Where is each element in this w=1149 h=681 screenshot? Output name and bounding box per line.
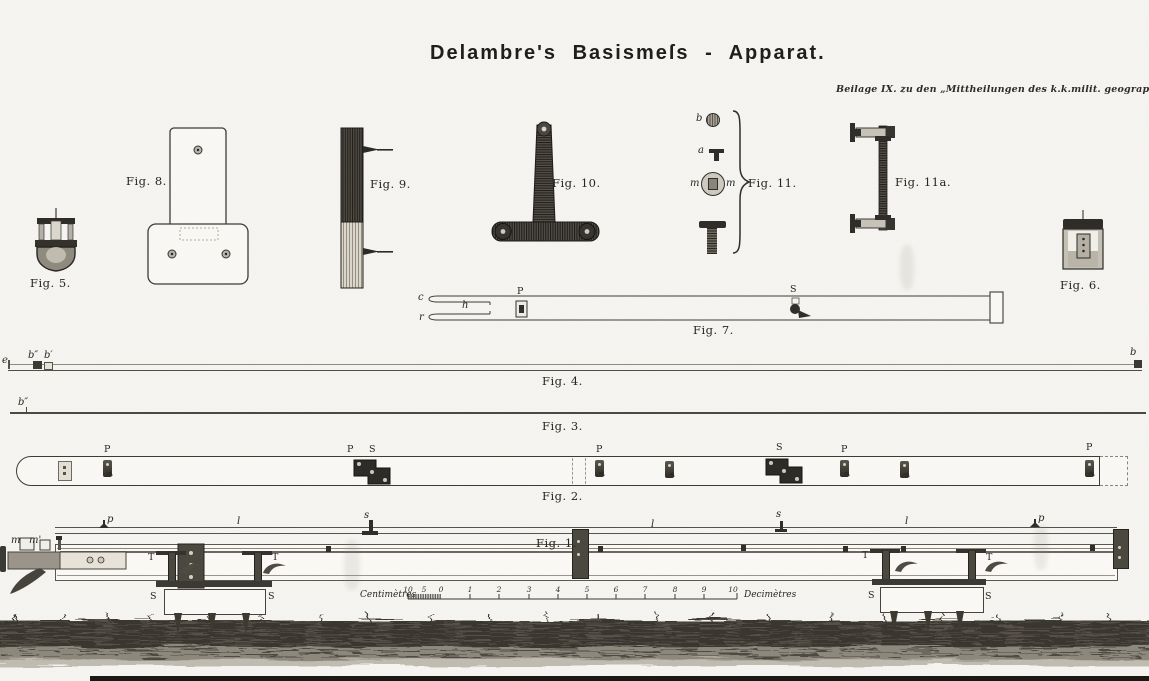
fig1-rail-block: [741, 545, 746, 551]
fig1-middle-bracket-hole: [577, 540, 580, 543]
fig2-clamp-p1: [103, 460, 112, 477]
fig4-letter-e: e: [2, 356, 8, 366]
fig1-letter-s-box: S: [868, 591, 875, 601]
fig1-right-plate-hole: [1118, 556, 1121, 559]
fig2-marker-4: P: [596, 445, 602, 455]
page-title: Delambre's Basismeſs - Apparat.: [430, 42, 826, 65]
scale-tick: 3: [527, 585, 532, 594]
scale-tick: 5: [422, 585, 427, 594]
fig1-s-fitting-left-base: [362, 531, 378, 535]
fig1-middle-bracket-hole: [577, 553, 580, 556]
fig11-bolt-head: [699, 221, 726, 228]
fig10-label: Fig. 10.: [552, 176, 601, 190]
scale-tick: 9: [702, 585, 707, 594]
fig2-sleeve-fitting-2: [764, 457, 804, 485]
fig1-letter-s-left: s: [364, 511, 369, 521]
scale-tick: 8: [673, 585, 678, 594]
engraving-sheet: Delambre's Basismeſs - Apparat. Beilage …: [0, 0, 1149, 681]
fig2-marker-2: P: [347, 445, 353, 455]
fig1-ground-spike: [208, 613, 216, 635]
fig2-clamp-p3: [840, 460, 849, 477]
fig1-letter-s-box: S: [268, 592, 275, 602]
scan-edge-bar: [90, 676, 1149, 681]
fig2-fitting-plain: [58, 461, 72, 481]
fig4-letter-b2: b″: [28, 351, 38, 361]
fig3-rod: [10, 412, 1146, 414]
fig2-marker-1: P: [104, 445, 110, 455]
scale-bar: 10 5 0 1 2 3 4 5 6 7 8 9 10: [402, 584, 747, 604]
fig1-letter-l-left: l: [237, 517, 240, 527]
ground-texture: [0, 608, 1149, 680]
scale-tick: 7: [643, 585, 648, 594]
fig1-s-fitting-right-base: [775, 529, 787, 532]
fig1-ground-spike: [890, 611, 898, 633]
fig1-letter-s-box: S: [150, 592, 157, 602]
fig1-trestle-post: [882, 551, 890, 581]
fig6-box-drawing: [1060, 210, 1106, 274]
fig8-label: Fig. 8.: [126, 174, 167, 188]
fig1-lever-arrow: [894, 558, 920, 574]
scale-tick: 5: [585, 585, 590, 594]
fig9-label: Fig. 9.: [370, 177, 411, 191]
fig9-bar-drawing: [340, 126, 425, 294]
fig7-letter-r: r: [419, 313, 424, 323]
fig7-letter-c: c: [418, 293, 424, 303]
fig1-ground-spike: [924, 611, 932, 633]
fig7-letter-a: a: [520, 303, 524, 311]
fig2-marker-5: S: [776, 443, 783, 453]
fig1-letter-l-mid: l: [651, 520, 654, 530]
fig5-label: Fig. 5.: [30, 276, 71, 290]
fig4-end-tick: [8, 360, 10, 369]
fig2-marker-7: P: [1086, 443, 1092, 453]
fig11-bolt-shaft: [707, 228, 717, 254]
fig1-letter-p-right: p: [1038, 514, 1044, 524]
fig1-letter-l-right: l: [905, 517, 908, 527]
fig1-ground-spike: [956, 611, 964, 633]
fig7-label: Fig. 7.: [693, 323, 734, 337]
fig11-part-b-letter: b: [696, 114, 702, 124]
scan-smudge: [1034, 525, 1048, 570]
fig4-label: Fig. 4.: [542, 374, 583, 388]
fig1-lever-arrow: [180, 560, 206, 576]
fig2-clamp-p2: [595, 460, 604, 477]
scale-tick: 10: [403, 585, 413, 594]
scan-smudge: [344, 540, 360, 590]
fig1-letter-s-right: s: [776, 510, 781, 520]
fig4-wire: [8, 364, 1142, 371]
fig7-letter-p: P: [517, 287, 523, 297]
fig4-left-fitting: [33, 361, 42, 369]
fig1-s-fitting-left-stem: [369, 520, 373, 531]
fig8-plate-drawing: [146, 124, 252, 290]
fig2-clamp-plain1: [665, 461, 674, 478]
fig1-rail-block: [843, 546, 848, 552]
fig1-trestle-box: [880, 587, 984, 613]
fig1-letter-t: T: [862, 551, 868, 561]
fig1-trestle-post: [968, 551, 976, 581]
fig2-label: Fig. 2.: [542, 489, 583, 503]
fig1-letter-p-left: p: [107, 515, 113, 525]
fig1-letter-m-prime: m': [29, 536, 41, 546]
fig2-joint: [572, 458, 586, 484]
fig1-trestle-crossbar: [156, 581, 272, 587]
fig4-letter-b: b: [1130, 348, 1136, 358]
scale-dm-unit: Decimètres: [744, 591, 796, 600]
fig11-part-a-letter: a: [698, 146, 704, 156]
fig1-trestle-box: [164, 589, 266, 615]
fig1-letter-t: T: [272, 553, 278, 563]
fig1-trestle-post: [254, 553, 262, 583]
fig1-right-plate-hole: [1118, 546, 1121, 549]
scale-tick: 10: [728, 585, 738, 594]
fig5-plummet-drawing: [30, 208, 82, 276]
fig1-rail-block: [901, 546, 906, 552]
fig1-ground-spike: [242, 613, 250, 635]
fig11-disc-slot: [708, 178, 718, 190]
fig11-part-m-left-letter: m: [690, 179, 699, 189]
fig2-clamp-plain2: [900, 461, 909, 478]
fig1-letter-t: T: [986, 553, 992, 563]
fig2-marker-3: S: [369, 445, 376, 455]
fig1-ground-spike: [174, 613, 182, 635]
fig2-bar-dashed-end: [1100, 456, 1128, 486]
fig2-clamp-p4: [1085, 460, 1094, 477]
fig2-bar: [16, 456, 1100, 486]
attribution-line: Beilage IX. zu den „Mittheilungen des k.…: [836, 84, 1149, 95]
fig1-letter-s-box: S: [985, 592, 992, 602]
fig7-letter-h: h: [462, 301, 468, 311]
fig1-trestle-crossbar: [872, 579, 986, 585]
fig6-label: Fig. 6.: [1060, 278, 1101, 292]
fig3-letter-b: b″: [18, 398, 28, 408]
fig2-marker-6: P: [841, 445, 847, 455]
fig11a-label: Fig. 11a.: [895, 175, 951, 189]
fig1-rail-block: [326, 546, 331, 552]
scale-tick: 6: [614, 585, 619, 594]
fig1-right-end-plate: [1113, 529, 1129, 569]
fig1-s-fitting-right-stem: [780, 521, 783, 529]
fig2-sleeve-fitting-1: [352, 458, 392, 486]
scale-tick: 4: [555, 585, 561, 594]
fig11-knob-b: [706, 113, 720, 127]
fig4-left-fitting2: [44, 362, 53, 370]
fig1-letter-t: T: [148, 553, 154, 563]
fig1-label: Fig. 1.: [536, 536, 577, 550]
scan-smudge: [900, 245, 914, 290]
scale-tick: 1: [468, 585, 473, 594]
fig7-letter-s: S: [790, 285, 797, 295]
fig4-right-fitting: [1134, 360, 1142, 368]
scale-tick: 0: [439, 585, 444, 594]
fig1-trestle-post: [168, 553, 176, 583]
fig4-letter-b1: b′: [44, 351, 53, 361]
fig1-rail-block: [1090, 545, 1095, 551]
fig11-label: Fig. 11.: [748, 176, 797, 190]
fig3-label: Fig. 3.: [542, 419, 583, 433]
fig1-letter-m: m: [11, 536, 20, 546]
fig1-rail-block: [598, 546, 603, 552]
fig11-tkey-stem: [714, 153, 719, 161]
scale-tick: 2: [496, 585, 502, 594]
